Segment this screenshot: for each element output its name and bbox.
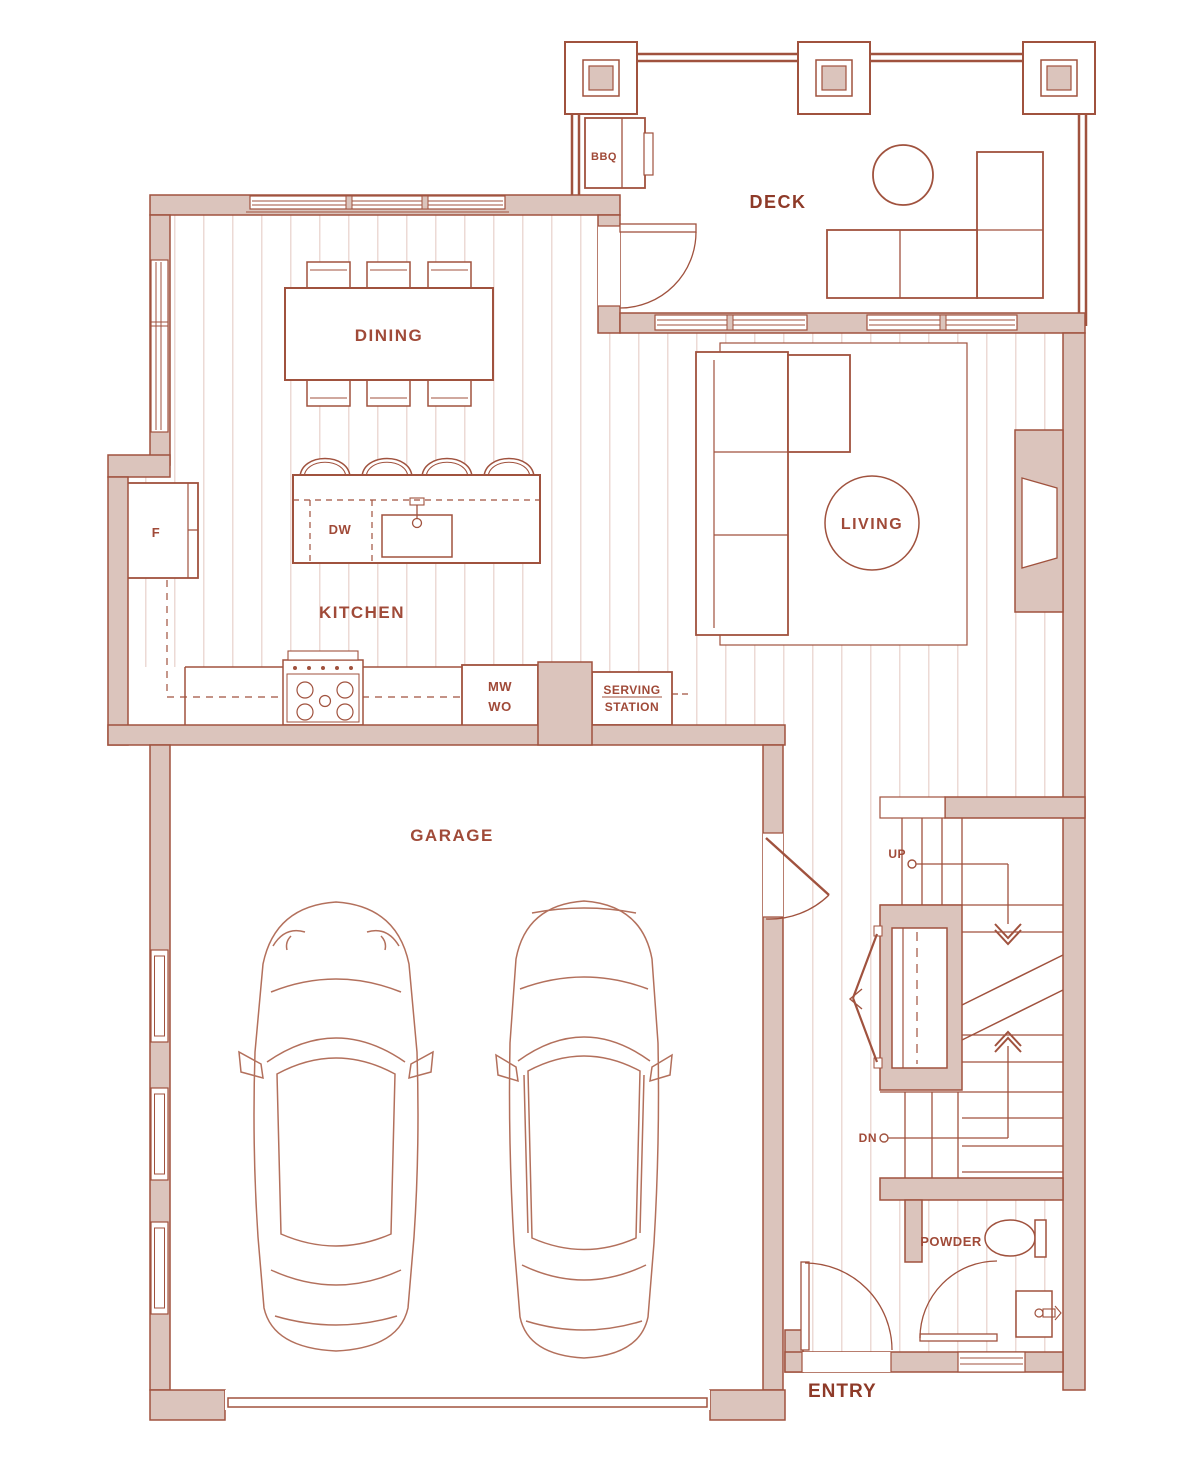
deck-sofa xyxy=(827,152,1043,298)
stair-label-up: UP xyxy=(888,847,906,861)
kitchen-island xyxy=(293,475,540,563)
car-1 xyxy=(239,902,433,1351)
garage-cars xyxy=(239,901,672,1358)
fridge xyxy=(125,483,198,578)
fixture-label-microwave: MW xyxy=(488,679,512,694)
mw-wo-cabinet xyxy=(462,665,538,727)
toilet xyxy=(985,1220,1046,1257)
door-dining-deck xyxy=(598,224,696,308)
window-entry-south xyxy=(958,1352,1025,1372)
fixture-label-dishwasher: DW xyxy=(329,522,352,537)
room-label-living: LIVING xyxy=(841,516,903,533)
fixture-label-serving-1: SERVING xyxy=(603,683,660,697)
room-label-deck: DECK xyxy=(749,192,806,212)
stair-label-down: DN xyxy=(859,1131,877,1145)
fixture-label-fridge: F xyxy=(152,525,160,540)
room-label-entry: ENTRY xyxy=(808,1381,877,1402)
room-label-powder: POWDER xyxy=(920,1234,982,1249)
fixture-label-serving-2: STATION xyxy=(605,700,659,714)
range-stove xyxy=(283,651,363,725)
fixture-label-bbq: BBQ xyxy=(591,151,617,163)
living-area xyxy=(696,343,967,645)
stair-landing xyxy=(880,797,945,818)
garage-door xyxy=(225,1390,710,1410)
staircase xyxy=(850,818,1063,1178)
window-dining-west xyxy=(151,260,168,432)
room-label-kitchen: KITCHEN xyxy=(319,603,405,622)
deck-area xyxy=(565,42,1095,326)
floor-plan-page: DECK DINING KITCHEN LIVING GARAGE POWDER… xyxy=(0,0,1200,1459)
car-2 xyxy=(496,901,672,1358)
fixture-label-wall-oven: WO xyxy=(488,699,511,714)
room-label-garage: GARAGE xyxy=(410,826,494,845)
floor-plan: DECK DINING KITCHEN LIVING GARAGE POWDER… xyxy=(0,0,1200,1459)
fireplace-niche xyxy=(1022,478,1057,568)
room-label-dining: DINING xyxy=(355,326,424,345)
window-garage-west xyxy=(151,950,168,1314)
deck-table xyxy=(873,145,933,205)
